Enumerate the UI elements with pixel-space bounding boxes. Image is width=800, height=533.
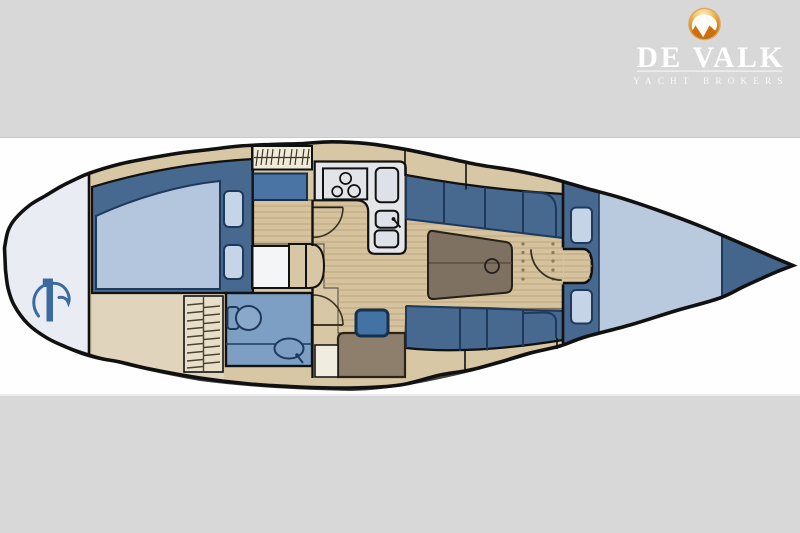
svg-text:YACHT BROKERS: YACHT BROKERS [633,76,789,86]
svg-text:DE VALK: DE VALK [637,42,786,74]
